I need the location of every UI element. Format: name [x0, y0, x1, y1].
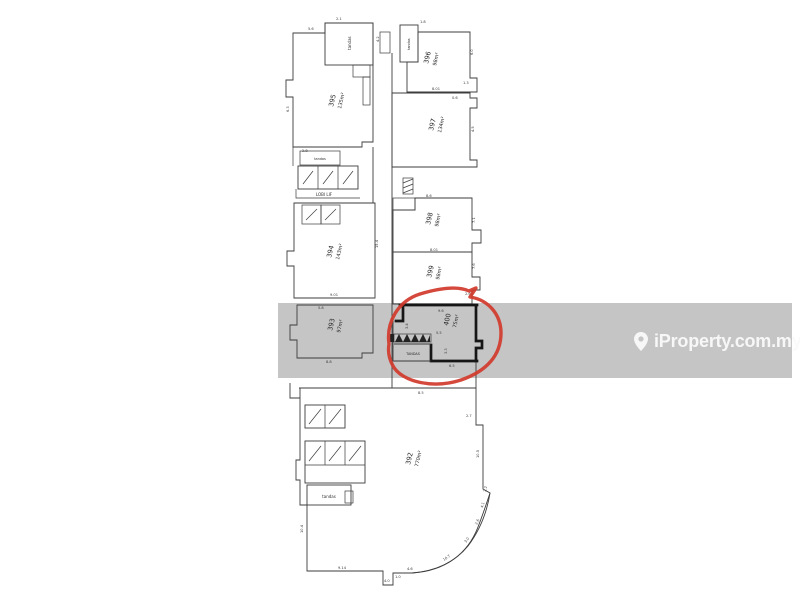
stair-shaft-hatch: [403, 179, 413, 193]
dim-label: 1.8: [420, 20, 426, 24]
unit-396-number: 396: [422, 51, 433, 65]
unit-394-number: 394: [325, 245, 336, 259]
unit-392-number: 392: [404, 452, 415, 466]
lobby-toilet-label: tandas: [314, 157, 326, 161]
dim-label: 8.5: [418, 391, 424, 395]
dim-label: 6.5: [449, 364, 455, 368]
dim-label: 10.7: [442, 554, 451, 562]
dim-label: 4.1: [480, 502, 485, 509]
dim-label: 7.1: [472, 217, 476, 223]
unit-392-curve: [412, 493, 490, 573]
unit-395-outline: [286, 23, 373, 147]
unit-392-top-jog: [290, 383, 300, 398]
small-room-a: [353, 65, 370, 77]
unit-397-area: 134m²: [437, 116, 447, 133]
unit-395-area: 135m²: [337, 92, 347, 109]
toilet-2-label: tandas: [407, 38, 411, 50]
unit-400-toilet-label: TANDAS: [405, 352, 420, 356]
dim-label: 2.1: [336, 17, 342, 21]
dim-label: 6.3: [286, 106, 290, 112]
dim-label: 7.6: [472, 263, 476, 269]
watermark: iProperty.com.my: [634, 331, 800, 352]
dim-label: 10.4: [300, 524, 304, 533]
dim-label: 4.2: [376, 36, 380, 42]
lower-duct: [345, 491, 353, 503]
unit-395-number: 395: [327, 94, 338, 108]
dim-label: 4.5: [471, 126, 475, 132]
unit-398-number: 398: [424, 212, 435, 226]
floorplan-image: 395 135m² 396 98m² 397 134m² 394 143m² 3…: [0, 0, 800, 600]
lower-lift-block: [305, 441, 365, 483]
dim-label: 0.6: [452, 96, 458, 100]
dim-label: 3.3: [444, 348, 448, 354]
dim-label: 8.01: [430, 248, 438, 252]
floorplan-drawing: 395 135m² 396 98m² 397 134m² 394 143m² 3…: [0, 0, 800, 600]
dim-label: 5.8: [318, 306, 324, 310]
dim-label: 9.14: [338, 566, 347, 570]
dim-label: 5.5: [436, 331, 442, 335]
dim-label: 9.01: [330, 293, 338, 297]
lift-lobby-label: LOBI LIF: [316, 192, 333, 197]
dim-label: 3.0: [464, 536, 471, 544]
dim-label: 9.6: [438, 309, 444, 313]
unit-398-duct: [393, 198, 415, 210]
unit-396-area: 98m²: [432, 52, 441, 66]
lower-toilet-label: tandas: [322, 494, 336, 499]
watermark-text: iProperty.com.my: [654, 331, 800, 352]
toilet-1-label: tandas: [347, 36, 352, 50]
dim-label: 15.4: [375, 239, 379, 248]
dim-label: 1.3: [463, 81, 469, 85]
dim-label: 1.0: [395, 575, 401, 579]
unit-394-area: 143m²: [335, 243, 345, 260]
dim-label: 6.0: [470, 49, 474, 55]
unit-398-area: 98m²: [434, 213, 443, 227]
dim-label: 5.6: [308, 27, 314, 31]
dim-label: 2.7: [466, 414, 472, 418]
unit-397-number: 397: [427, 118, 438, 132]
location-pin-icon: [634, 332, 648, 351]
dim-label: 10.5: [476, 450, 480, 458]
dim-label: 8.8: [326, 360, 332, 364]
unit-392-area: 770m²: [414, 450, 424, 467]
dim-label: 4.0: [384, 579, 390, 583]
dim-label: 4.6: [407, 567, 413, 571]
small-room-b: [363, 77, 370, 105]
lower-lift-marks: [305, 441, 365, 465]
lift-marks: [303, 171, 353, 184]
dim-label: 3.4: [405, 323, 409, 329]
lower-stair-marks: [309, 405, 341, 428]
dim-label: 8.01: [432, 87, 440, 91]
unit-399-area: 98m²: [435, 266, 444, 280]
unit-399-number: 399: [425, 265, 436, 279]
dim-label: 2.8: [302, 149, 308, 153]
dimension-labels: 5.6 2.1 1.8 6.0 8.01 0.6 1.3 4.5 6.3 2.8…: [286, 17, 488, 583]
duct-room: [380, 32, 390, 53]
dim-label: 8.6: [426, 194, 432, 198]
